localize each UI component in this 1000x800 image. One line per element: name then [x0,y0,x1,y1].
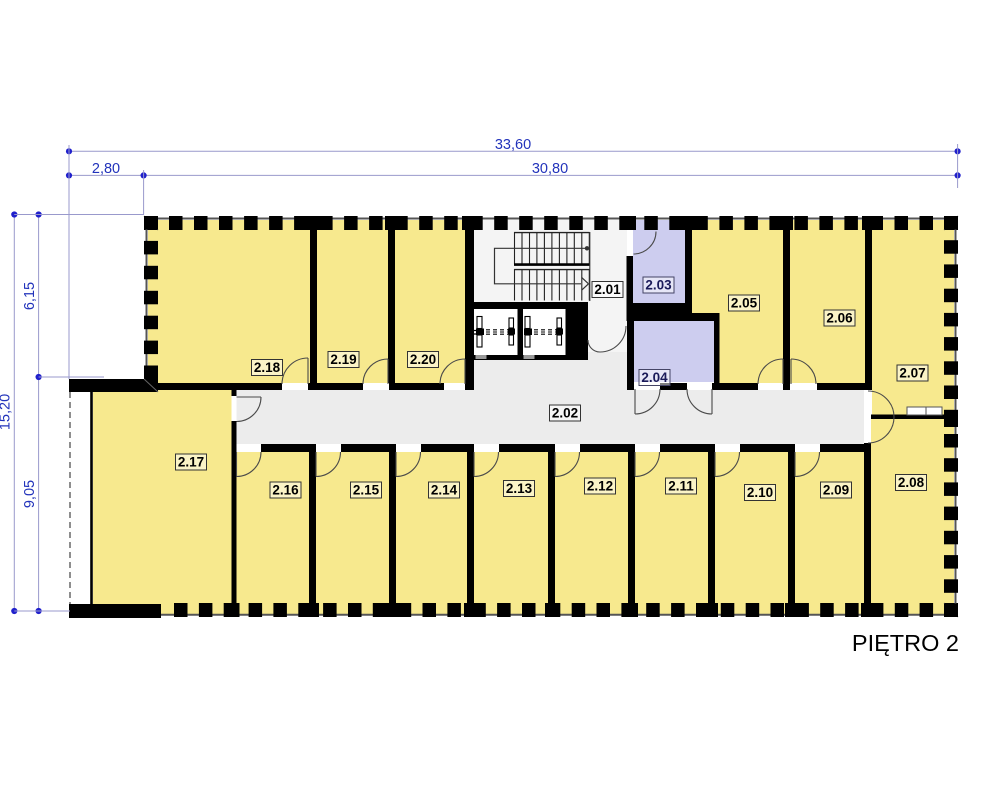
svg-text:2.03: 2.03 [645,278,672,293]
svg-text:2.16: 2.16 [272,483,299,498]
svg-text:2.01: 2.01 [594,282,621,297]
svg-text:2.20: 2.20 [410,352,436,367]
svg-text:9,05: 9,05 [22,480,38,508]
svg-text:2.07: 2.07 [899,366,925,381]
svg-text:2.13: 2.13 [506,481,533,496]
svg-text:2.10: 2.10 [747,485,773,500]
svg-text:2.14: 2.14 [431,483,458,498]
svg-text:2.11: 2.11 [668,479,694,494]
svg-text:2.17: 2.17 [178,455,204,470]
svg-text:2.18: 2.18 [254,360,281,375]
svg-text:15,20: 15,20 [0,394,14,430]
svg-text:2.05: 2.05 [731,296,758,311]
svg-text:30,80: 30,80 [532,161,568,177]
svg-text:33,60: 33,60 [495,137,531,153]
svg-text:2.12: 2.12 [587,479,613,494]
svg-text:2.08: 2.08 [898,475,925,490]
svg-text:2.15: 2.15 [353,483,380,498]
svg-text:2.04: 2.04 [641,370,668,385]
svg-text:2,80: 2,80 [92,161,120,177]
svg-text:2.02: 2.02 [552,406,578,421]
svg-text:2.09: 2.09 [823,483,849,498]
svg-text:PIĘTRO 2: PIĘTRO 2 [852,630,959,656]
svg-text:2.06: 2.06 [826,311,853,326]
svg-text:2.19: 2.19 [330,352,356,367]
svg-text:6,15: 6,15 [22,282,38,310]
